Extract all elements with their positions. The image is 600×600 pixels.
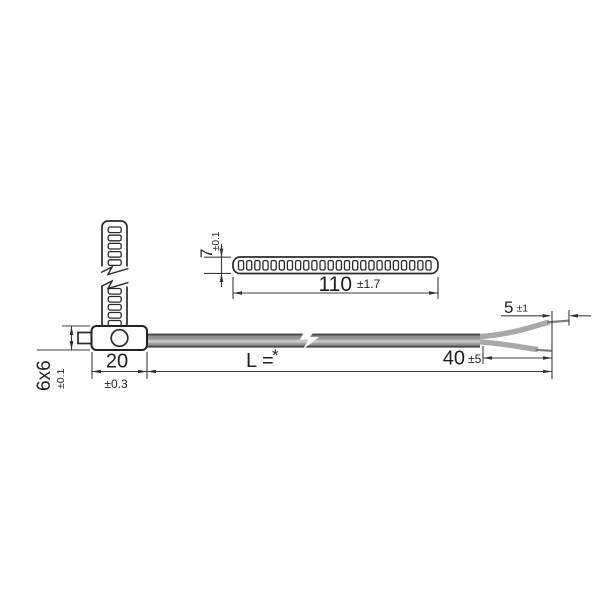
strip-side-holes-upper — [108, 227, 121, 265]
split-length-label: 40 — [443, 348, 465, 370]
top-wire — [477, 322, 550, 337]
tip-length-label: 5 — [504, 298, 513, 317]
top-wire-bare-tip — [547, 321, 569, 323]
split-length-tolerance: ±5 — [468, 352, 482, 366]
perforation-hole — [361, 261, 366, 270]
lead-wires — [477, 321, 569, 351]
strip-length-label: 110 — [319, 273, 352, 296]
perforation-hole — [410, 261, 415, 270]
perforation-hole — [108, 243, 121, 249]
perforation-hole — [426, 261, 431, 270]
strip-width-tolerance: ±0.1 — [211, 231, 222, 251]
perforation-hole — [320, 261, 325, 270]
dim-strip-length: 110 ±1.7 — [233, 273, 438, 299]
arrow-left-icon — [92, 370, 101, 374]
arrow-right-icon — [543, 314, 552, 318]
arrow-left-icon — [233, 291, 242, 295]
tip-length-tolerance: ±1 — [517, 303, 529, 315]
dim-strip-width: 7 ±0.1 — [197, 231, 231, 287]
perforation-hole — [263, 261, 268, 270]
arrow-down-icon — [70, 341, 74, 350]
perforation-hole — [336, 261, 341, 270]
arrow-up-icon — [220, 273, 224, 282]
perforation-hole — [108, 305, 121, 311]
bottom-wire — [477, 342, 538, 350]
body-length-label: 20 — [106, 351, 128, 373]
technical-drawing-page: 7 ±0.1 110 ±1.7 6x6 ±0.1 20 ±0.3 — [0, 0, 600, 600]
technical-drawing: 7 ±0.1 110 ±1.7 6x6 ±0.1 20 ±0.3 — [0, 0, 600, 600]
arrow-right-icon — [543, 370, 552, 374]
perforation-hole — [328, 261, 333, 270]
perforation-hole — [108, 313, 121, 319]
dim-body-length: 20 ±0.3 — [92, 351, 147, 392]
arrow-right-icon — [429, 291, 438, 295]
perforation-hole — [377, 261, 382, 270]
mounting-strip-top-view — [233, 257, 438, 274]
body-length-tolerance: ±0.3 — [104, 377, 128, 391]
arrow-right-icon — [138, 370, 147, 374]
arrow-left-icon — [147, 370, 156, 374]
perforation-hole — [108, 297, 121, 303]
perforation-hole — [344, 261, 349, 270]
perforation-hole — [393, 261, 398, 270]
mounting-strip-side-view — [101, 221, 129, 329]
perforation-hole — [239, 261, 244, 270]
strip-side-holes-lower — [108, 289, 121, 327]
arrow-right-icon — [543, 356, 552, 360]
body-section-tolerance: ±0.1 — [55, 368, 67, 389]
probe-head — [78, 326, 147, 350]
perforation-hole — [108, 227, 121, 233]
probe-tip-nub — [78, 333, 93, 344]
perforation-hole — [108, 252, 121, 258]
perforation-hole — [296, 261, 301, 270]
probe-mounting-hole — [111, 330, 128, 347]
arrow-left-icon — [483, 356, 492, 360]
bottom-wire-bare-tip — [536, 350, 552, 351]
perforation-hole — [353, 261, 358, 270]
perforation-hole — [369, 261, 374, 270]
perforation-hole — [304, 261, 309, 270]
perforation-hole — [385, 261, 390, 270]
arrow-up-icon — [70, 326, 74, 335]
perforation-hole — [279, 261, 284, 270]
perforation-hole — [108, 260, 121, 266]
perforation-hole — [108, 289, 121, 295]
cable-length-asterisk: * — [272, 346, 279, 365]
strip-break-icon — [101, 267, 129, 289]
strip-length-tolerance: ±1.7 — [357, 277, 381, 291]
arrow-left-icon — [569, 314, 578, 318]
perforation-hole — [108, 235, 121, 241]
perforation-hole — [271, 261, 276, 270]
perforation-hole — [402, 261, 407, 270]
perforation-hole — [255, 261, 260, 270]
perforation-hole — [418, 261, 423, 270]
cable-length-label: L = — [246, 350, 274, 372]
body-section-label: 6x6 — [34, 360, 55, 391]
perforation-hole — [312, 261, 317, 270]
perforation-hole — [247, 261, 252, 270]
perforation-hole — [287, 261, 292, 270]
